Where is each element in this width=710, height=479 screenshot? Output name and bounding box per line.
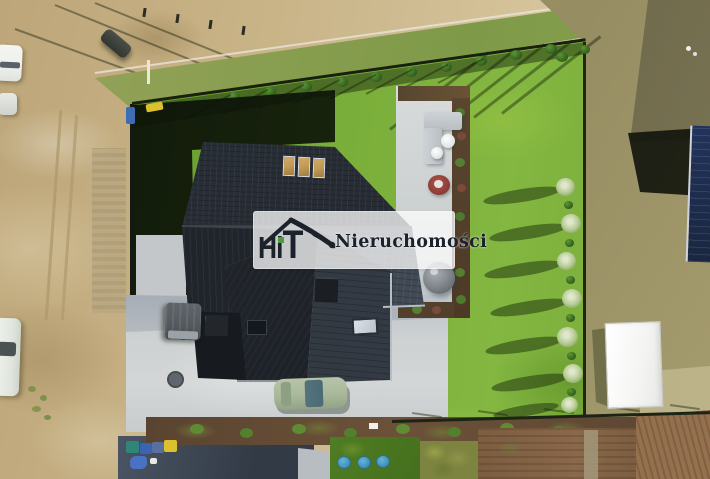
fence-bush (545, 44, 557, 54)
fence-post (142, 8, 146, 17)
corner-bush (556, 52, 568, 62)
manhole (167, 371, 184, 388)
roof-skylight (313, 158, 326, 178)
hedge-bush (566, 314, 575, 322)
house-icon (256, 213, 340, 271)
tree-crown (561, 214, 581, 233)
recycling-bin-blue (140, 443, 152, 454)
tire-track (61, 115, 78, 320)
bed-shrub (240, 428, 253, 438)
tree-crown (557, 252, 576, 270)
tree-crown (562, 289, 582, 308)
grass-tuft (44, 415, 51, 420)
recycling-bin-teal (126, 441, 139, 453)
recycling-bin-slate (152, 442, 164, 453)
hedge-bush (567, 388, 576, 396)
roof-window-dark (247, 320, 267, 335)
bed-shrub (190, 424, 204, 434)
roof-skylight (283, 156, 296, 176)
blue-bag (130, 456, 147, 469)
fence-bush (510, 50, 522, 60)
hedge-bush (567, 352, 576, 360)
tree-crown (557, 327, 578, 347)
white-pouf (441, 134, 455, 148)
hedge-bush (566, 276, 575, 284)
aerial-photo: HiT Nieruchomości (0, 0, 710, 479)
white-pouf (431, 147, 443, 159)
white-dot (693, 52, 697, 56)
west-fence (130, 104, 133, 310)
green-car-rear-glass (281, 382, 292, 406)
bed-plant (455, 212, 465, 221)
car-windshield (0, 342, 16, 357)
wire-shadow (55, 4, 204, 66)
bed-shrub (292, 424, 306, 434)
fence-post (208, 20, 212, 29)
mailbox-blue (126, 107, 135, 124)
bed-white-box (369, 423, 378, 429)
grass-tuft (32, 406, 41, 412)
tree-crown (561, 397, 578, 413)
chimney (315, 277, 339, 303)
gate-white-post (147, 60, 150, 84)
hedge-bush (565, 239, 574, 247)
dark-car-top (99, 27, 133, 59)
olive-bushes (420, 441, 478, 479)
fence-post (241, 26, 245, 35)
corner-bush (580, 45, 590, 54)
outdoor-sofa (424, 128, 442, 164)
right-fence (583, 42, 586, 418)
bed-plant (456, 295, 466, 304)
bed-plant (457, 132, 466, 140)
dark-carport-box (205, 315, 229, 337)
bed-shrub (396, 424, 410, 434)
roof-gutter (390, 273, 392, 381)
blue-garden-circle (337, 456, 351, 469)
neighbor-navy-roof (686, 126, 710, 263)
bed-plant (455, 158, 465, 167)
roof-skylight (298, 157, 311, 177)
tree-crown (563, 364, 583, 383)
roof-window (352, 317, 379, 335)
fence-post (175, 14, 179, 23)
terrace-side-bed (452, 98, 470, 318)
grass-tuft (40, 395, 47, 401)
grass-tuft (28, 386, 36, 392)
bed-plant (457, 184, 466, 192)
blue-garden-circle (357, 456, 371, 469)
bed-shrub (448, 427, 461, 437)
hedge-bush (564, 201, 573, 209)
white-dot (686, 46, 691, 51)
white-sack (150, 458, 157, 464)
bed-plant (455, 268, 465, 277)
tire-track (45, 110, 63, 320)
parked-car-bottom (0, 318, 21, 397)
spa-dome-highlight (430, 268, 438, 275)
recycling-bin-yellow (164, 440, 177, 452)
wordmark: Nieruchomości (335, 232, 487, 252)
bed-plant (432, 306, 441, 314)
gravel-strip (92, 148, 126, 313)
brand-logo: HiT (256, 213, 336, 269)
hanging-chair-cushion (434, 180, 443, 188)
garden-shed (605, 321, 664, 409)
garden-path (584, 430, 598, 479)
tree-crown (556, 178, 575, 196)
watermark-panel: HiT Nieruchomości (253, 211, 455, 269)
vegetable-garden (478, 428, 640, 479)
van-hood (168, 330, 198, 339)
green-car-windshield (305, 380, 324, 408)
blue-garden-circle (376, 455, 390, 468)
car-windshield (0, 61, 20, 68)
parked-car-small (0, 93, 17, 115)
